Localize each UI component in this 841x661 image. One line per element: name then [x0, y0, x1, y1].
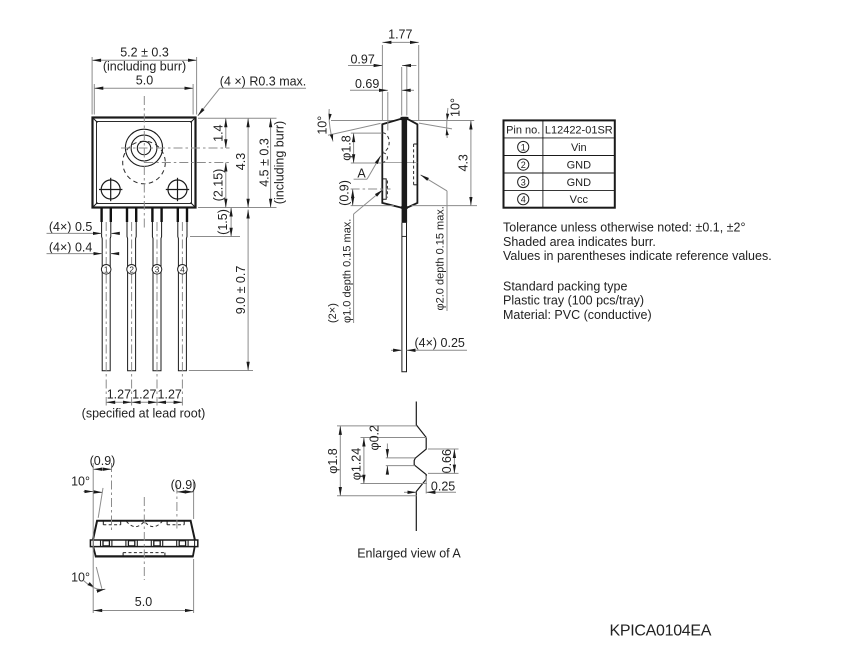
svg-text:KPICA0104EA: KPICA0104EA	[610, 623, 712, 640]
svg-text:(1.5): (1.5)	[216, 209, 230, 235]
svg-text:2: 2	[129, 265, 134, 274]
svg-text:0.97: 0.97	[350, 52, 374, 66]
svg-text:Tolerance unless otherwise not: Tolerance unless otherwise noted: ±0.1, …	[503, 221, 745, 235]
svg-text:1.27: 1.27	[158, 387, 182, 401]
svg-text:(2×): (2×)	[327, 303, 339, 323]
svg-text:10°: 10°	[449, 98, 463, 117]
svg-text:(2.15): (2.15)	[212, 169, 226, 202]
svg-text:(including burr): (including burr)	[272, 121, 286, 204]
svg-text:1: 1	[104, 265, 109, 274]
svg-text:(0.9): (0.9)	[171, 478, 197, 492]
svg-text:Standard packing type: Standard packing type	[503, 280, 627, 294]
svg-text:φ2.0 depth 0.15 max.: φ2.0 depth 0.15 max.	[435, 206, 447, 310]
svg-text:1.77: 1.77	[388, 28, 412, 42]
svg-text:GND: GND	[567, 177, 592, 189]
svg-text:10°: 10°	[316, 116, 330, 135]
svg-text:Values in parentheses indicate: Values in parentheses indicate reference…	[503, 249, 772, 263]
svg-text:4.3: 4.3	[457, 154, 471, 171]
svg-text:GND: GND	[567, 159, 592, 171]
svg-text:φ0.2: φ0.2	[368, 425, 382, 451]
svg-text:(4×) 0.5: (4×) 0.5	[49, 220, 92, 234]
svg-text:φ1.0 depth 0.15 max.: φ1.0 depth 0.15 max.	[342, 219, 354, 323]
svg-text:A: A	[357, 167, 366, 181]
svg-text:(4 ×) R0.3 max.: (4 ×) R0.3 max.	[220, 75, 306, 89]
svg-text:Enlarged view of A: Enlarged view of A	[357, 547, 461, 561]
svg-text:φ1.24: φ1.24	[350, 448, 364, 480]
svg-text:(4×) 0.25: (4×) 0.25	[415, 336, 465, 350]
svg-text:Plastic tray (100 pcs/tray): Plastic tray (100 pcs/tray)	[503, 294, 644, 308]
svg-text:Pin no.: Pin no.	[506, 124, 540, 136]
svg-text:3: 3	[155, 265, 160, 274]
svg-text:4: 4	[180, 265, 185, 274]
svg-text:(including burr): (including burr)	[103, 60, 186, 74]
svg-text:1: 1	[521, 142, 526, 152]
svg-text:4.5 ± 0.3: 4.5 ± 0.3	[257, 138, 271, 187]
svg-text:φ1.8: φ1.8	[326, 448, 340, 474]
svg-text:1.27: 1.27	[132, 387, 156, 401]
svg-text:(0.9): (0.9)	[90, 454, 116, 468]
svg-text:1.4: 1.4	[212, 124, 226, 141]
svg-text:Shaded area indicates burr.: Shaded area indicates burr.	[503, 235, 656, 249]
svg-text:Vcc: Vcc	[570, 194, 589, 206]
svg-text:5.0: 5.0	[136, 74, 153, 88]
svg-text:0.66: 0.66	[440, 449, 454, 473]
svg-text:φ1.8: φ1.8	[339, 135, 353, 161]
svg-text:(4×) 0.4: (4×) 0.4	[49, 240, 92, 254]
svg-text:(specified at lead root): (specified at lead root)	[82, 407, 206, 421]
svg-text:3: 3	[521, 177, 526, 187]
svg-text:Material: PVC (conductive): Material: PVC (conductive)	[503, 308, 652, 322]
svg-text:10°: 10°	[71, 571, 90, 585]
svg-text:2: 2	[521, 160, 526, 170]
svg-text:4: 4	[521, 195, 526, 205]
svg-text:(0.9): (0.9)	[338, 180, 352, 206]
svg-text:1.27: 1.27	[107, 387, 131, 401]
svg-text:9.0 ± 0.7: 9.0 ± 0.7	[234, 266, 248, 315]
svg-text:10°: 10°	[71, 474, 90, 488]
svg-text:5.2 ± 0.3: 5.2 ± 0.3	[120, 46, 169, 60]
svg-text:0.69: 0.69	[355, 77, 379, 91]
svg-text:5.0: 5.0	[135, 595, 152, 609]
svg-text:4.3: 4.3	[234, 153, 248, 170]
svg-text:L12422-01SR: L12422-01SR	[545, 124, 613, 136]
svg-text:0.25: 0.25	[431, 479, 455, 493]
svg-text:Vin: Vin	[571, 142, 587, 154]
